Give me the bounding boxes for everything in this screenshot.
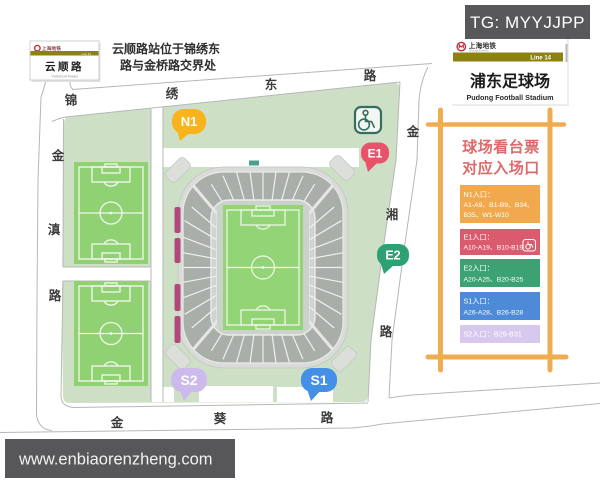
svg-text:锦: 锦 bbox=[65, 92, 78, 107]
svg-text:E2: E2 bbox=[385, 249, 400, 263]
svg-text:球场看台票: 球场看台票 bbox=[462, 138, 540, 156]
svg-text:金: 金 bbox=[51, 148, 65, 163]
svg-text:金: 金 bbox=[110, 415, 124, 430]
svg-text:A20-A25、B20-B25: A20-A25、B20-B25 bbox=[464, 277, 524, 284]
svg-text:TG: MYYJJPP: TG: MYYJJPP bbox=[470, 13, 585, 32]
svg-text:A1-A9、B1-B9、B34、: A1-A9、B1-B9、B34、 bbox=[464, 202, 534, 209]
svg-text:S1入口：: S1入口： bbox=[464, 297, 494, 306]
svg-text:葵: 葵 bbox=[213, 411, 227, 426]
svg-text:绣: 绣 bbox=[165, 86, 179, 101]
svg-text:东: 东 bbox=[265, 77, 278, 92]
svg-text:Line 14: Line 14 bbox=[82, 52, 92, 56]
svg-text:路: 路 bbox=[321, 410, 334, 425]
svg-text:B35、W1-W10: B35、W1-W10 bbox=[464, 212, 510, 219]
svg-text:路与金桥路交界处: 路与金桥路交界处 bbox=[120, 58, 217, 73]
svg-text:云顺路: 云顺路 bbox=[45, 60, 84, 73]
svg-text:对应入场口: 对应入场口 bbox=[462, 159, 540, 177]
svg-text:E1: E1 bbox=[368, 146, 383, 160]
svg-text:湘: 湘 bbox=[386, 207, 399, 222]
svg-text:浦东足球场: 浦东足球场 bbox=[470, 72, 550, 91]
svg-text:S1: S1 bbox=[310, 372, 327, 388]
svg-text:E2入口：: E2入口： bbox=[464, 264, 494, 273]
svg-text:金: 金 bbox=[406, 124, 420, 139]
svg-text:S2: S2 bbox=[180, 372, 197, 388]
svg-text:N1: N1 bbox=[181, 114, 198, 129]
svg-text:云顺路站位于锦绣东: 云顺路站位于锦绣东 bbox=[112, 41, 220, 56]
svg-text:Line 14: Line 14 bbox=[530, 56, 551, 62]
svg-text:A26-A28、B26-B28: A26-A28、B26-B28 bbox=[464, 310, 524, 317]
svg-text:路: 路 bbox=[49, 288, 62, 303]
svg-text:Shanghai Metro: Shanghai Metro bbox=[469, 49, 489, 53]
svg-text:A10-A19、B10-B19: A10-A19、B10-B19 bbox=[464, 245, 524, 252]
svg-text:S2入口：B29-B31: S2入口：B29-B31 bbox=[464, 330, 522, 339]
svg-text:N1入口：: N1入口： bbox=[464, 190, 495, 199]
svg-text:www.enbiaorenzheng.com: www.enbiaorenzheng.com bbox=[18, 451, 213, 469]
svg-text:Yunshun Road: Yunshun Road bbox=[51, 74, 77, 79]
svg-text:路: 路 bbox=[380, 324, 393, 339]
svg-text:Pudong Football Stadium: Pudong Football Stadium bbox=[466, 93, 553, 102]
svg-text:E1入口：: E1入口： bbox=[464, 233, 494, 242]
svg-text:路: 路 bbox=[364, 68, 377, 83]
svg-text:滇: 滇 bbox=[48, 222, 61, 237]
